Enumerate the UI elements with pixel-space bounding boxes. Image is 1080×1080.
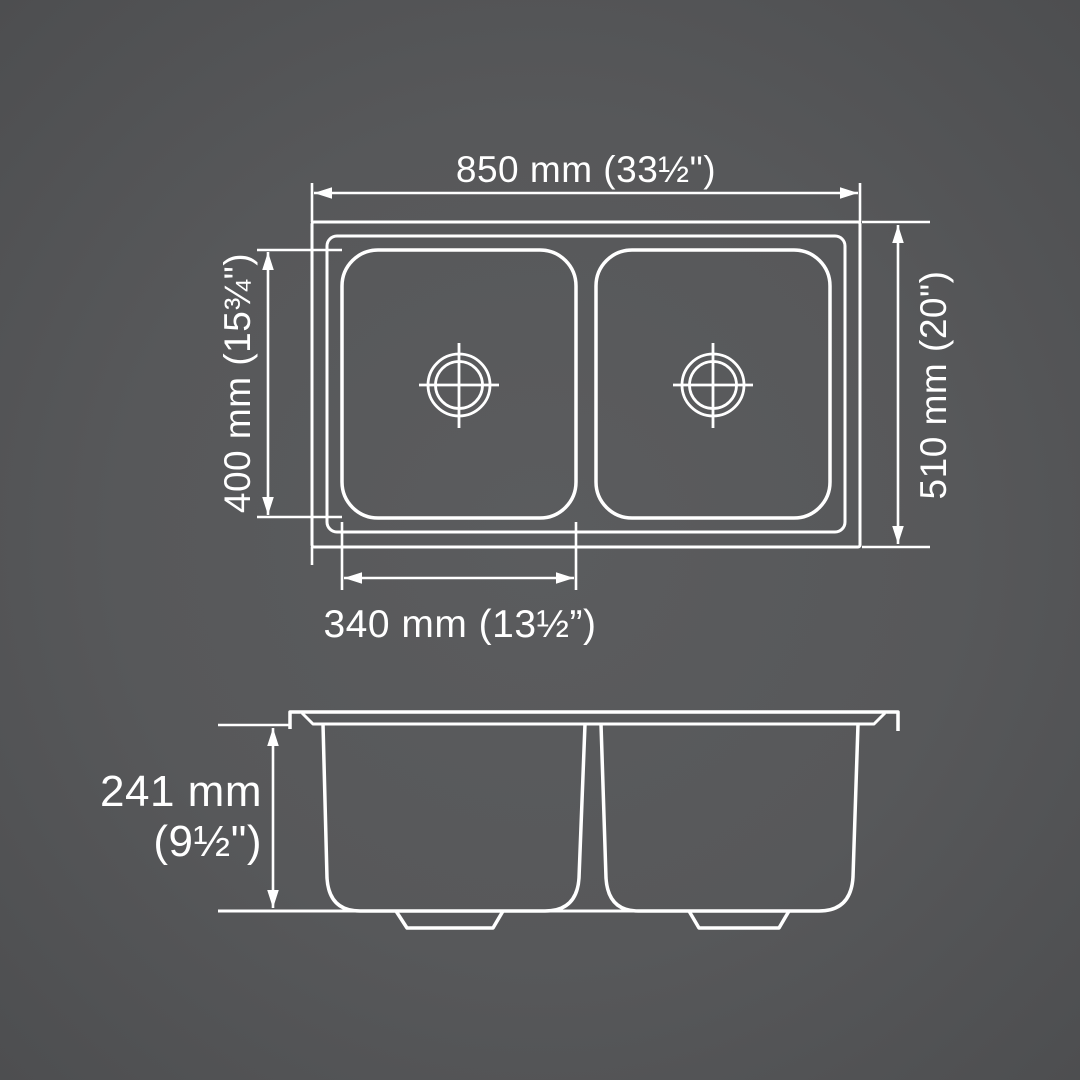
dim-bowl-height-label-mm: 241 mm: [100, 767, 262, 816]
front-view-rim-outer: [290, 712, 898, 731]
right-drain-icon: [673, 343, 753, 428]
dim-bowl-depth: 400 mm (15¾"): [217, 250, 342, 517]
top-view-outer-edge: [312, 222, 860, 547]
dim-bowl-height-label-in: (9½"): [153, 817, 262, 866]
dim-bowl-width-label: 340 mm (13½”): [323, 603, 596, 646]
front-view-right-bowl: [601, 724, 858, 911]
sink-dimension-diagram: 850 mm (33½") 510 mm (20") 400 mm (15¾")…: [0, 0, 1080, 1080]
diagram-svg: 850 mm (33½") 510 mm (20") 400 mm (15¾")…: [0, 0, 1080, 1080]
dim-bowl-width: 340 mm (13½”): [323, 522, 596, 646]
sink-top-view: [312, 222, 860, 547]
left-drain-icon: [419, 343, 499, 428]
dim-overall-width-label: 850 mm (33½"): [456, 149, 716, 190]
front-view-left-drain: [396, 911, 503, 928]
dim-bowl-depth-label: 400 mm (15¾"): [217, 253, 258, 513]
sink-front-view: [218, 712, 898, 928]
top-view-inner-edge: [327, 236, 845, 532]
front-view-left-bowl: [323, 724, 585, 911]
dim-bowl-height: 241 mm (9½"): [100, 725, 289, 908]
front-view-right-drain: [689, 911, 789, 928]
dim-overall-width: 850 mm (33½"): [312, 149, 860, 565]
dim-overall-depth-label: 510 mm (20"): [913, 271, 954, 500]
front-view-rim-inner: [302, 713, 885, 724]
dim-overall-depth: 510 mm (20"): [862, 222, 954, 547]
